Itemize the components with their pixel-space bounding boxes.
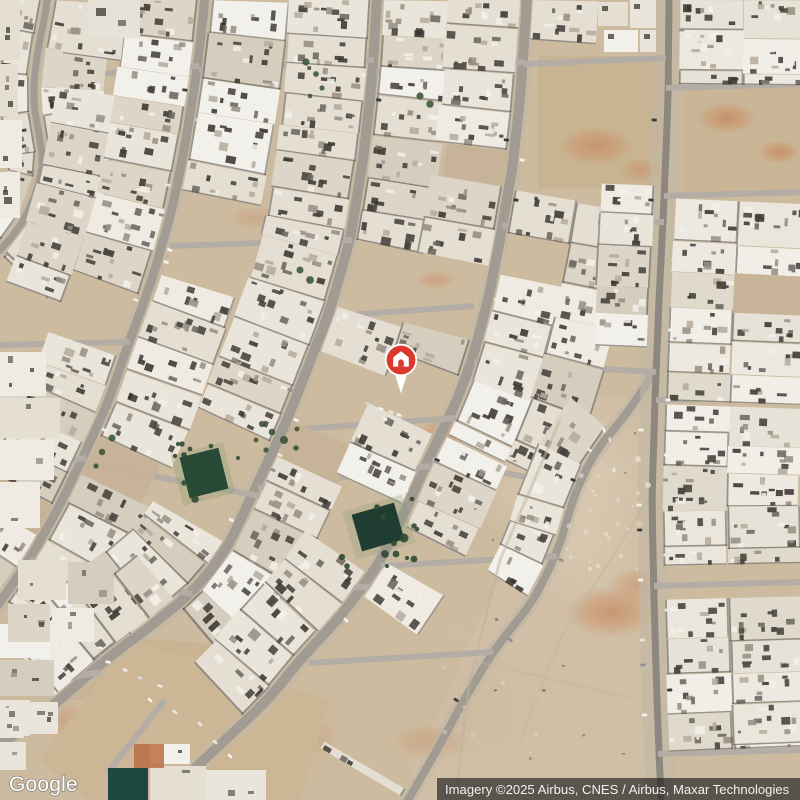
svg-text:Imagery ©2025 Airbus, CNES / A: Imagery ©2025 Airbus, CNES / Airbus, Max… (445, 782, 790, 797)
svg-text:Google: Google (9, 773, 78, 796)
